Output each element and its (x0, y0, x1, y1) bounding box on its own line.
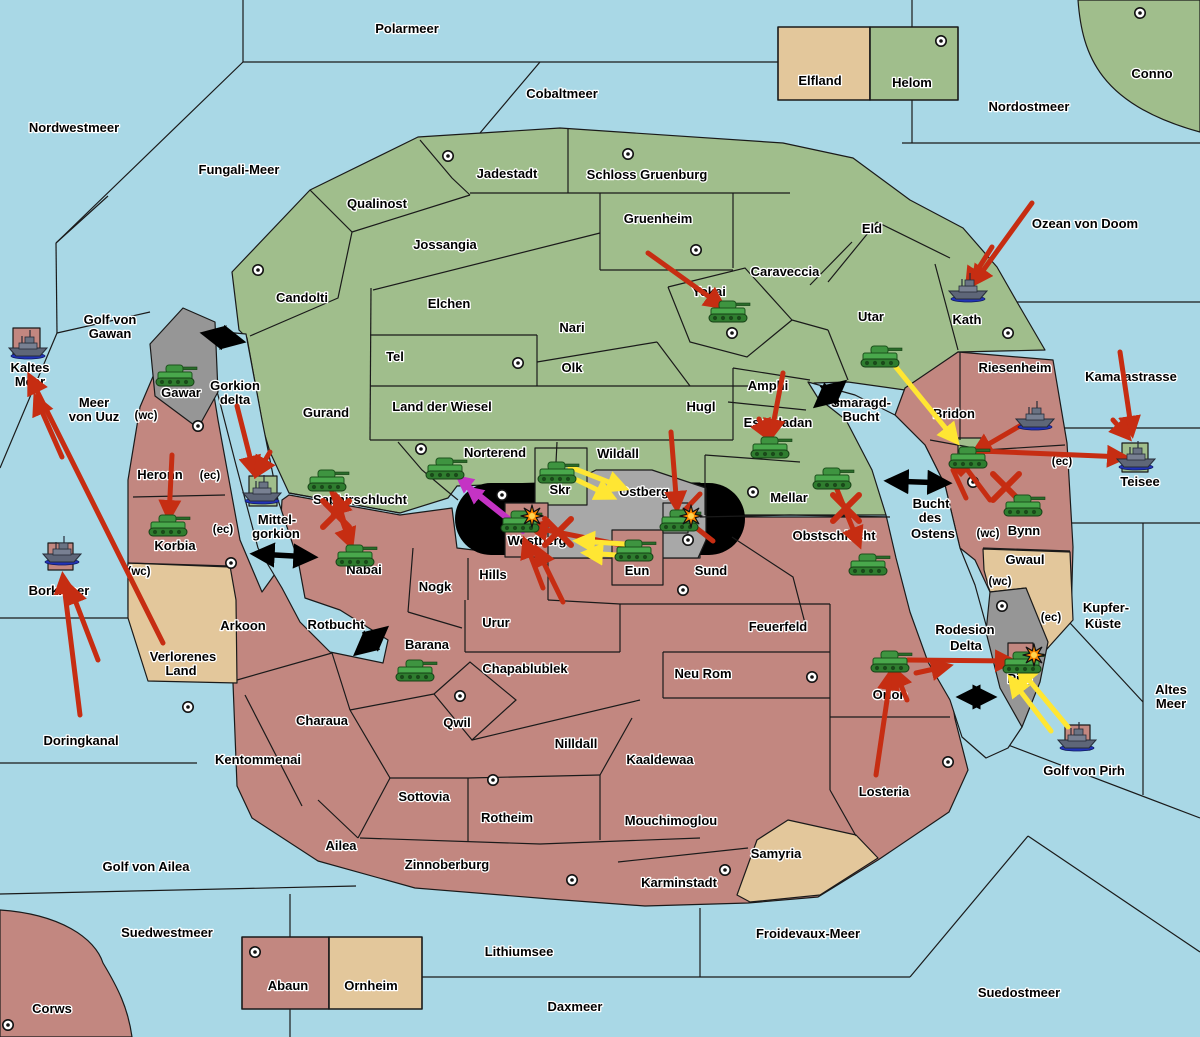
supply-center-dot (193, 421, 203, 431)
label-gwaul: Gwaul (1005, 552, 1044, 567)
label-gurand: Gurand (303, 405, 349, 420)
label-ozean-von-doom: Ozean von Doom (1032, 216, 1138, 231)
label-bucht: Bucht (843, 409, 881, 424)
label-smaragd: Smaragd- (831, 395, 891, 410)
label-kamalastrasse: Kamalastrasse (1085, 369, 1177, 384)
supply-center-dot (253, 265, 263, 275)
label-gorkion: Gorkion (210, 378, 260, 393)
label-wc: (wc) (977, 528, 1000, 540)
label-ostberg: Ostberg (619, 484, 669, 499)
label-ec: (ec) (213, 524, 234, 536)
supply-center-dot (936, 36, 946, 46)
label-norterend: Norterend (464, 445, 526, 460)
label-ostens: Ostens (911, 526, 955, 541)
label-suedostmeer: Suedostmeer (978, 985, 1060, 1000)
red-attack-arrow-icon (908, 660, 1012, 661)
label-abaun: Abaun (268, 978, 309, 993)
supply-center-dot (720, 865, 730, 875)
label-daxmeer: Daxmeer (548, 999, 603, 1014)
label-rotbucht: Rotbucht (307, 617, 365, 632)
label-candolti: Candolti (276, 290, 328, 305)
label-kath: Kath (953, 312, 982, 327)
label-riesenheim: Riesenheim (979, 360, 1052, 375)
supply-center-dot (943, 757, 953, 767)
supply-center-dot (997, 601, 1007, 611)
label-feuerfeld: Feuerfeld (749, 619, 808, 634)
label-rodesion: Rodesion (935, 622, 994, 637)
label-chapablublek: Chapablublek (482, 661, 568, 676)
label-lithiumsee: Lithiumsee (485, 944, 554, 959)
label-skr: Skr (550, 482, 571, 497)
label-golf-von-pirh: Golf von Pirh (1043, 763, 1125, 778)
label-des: des (919, 510, 941, 525)
yellow-attack-arrow-icon (578, 541, 625, 544)
label-losteria: Losteria (859, 784, 910, 799)
label-wildall: Wildall (597, 446, 639, 461)
label-delta: Delta (950, 638, 983, 653)
game-map: NordwestmeerPolarmeerFungali-MeerCobaltm… (0, 0, 1200, 1037)
supply-center-dot (497, 490, 507, 500)
label-sottovia: Sottovia (398, 789, 450, 804)
label-heronn: Heronn (137, 467, 183, 482)
supply-center-dot (183, 702, 193, 712)
supply-center-dot (488, 775, 498, 785)
label-gorkion: gorkion (252, 526, 300, 541)
label-nordwestmeer: Nordwestmeer (29, 120, 119, 135)
supply-center-dot (513, 358, 523, 368)
adjacency-double-arrow-icon (890, 481, 946, 483)
label-ec: (ec) (1052, 456, 1073, 468)
explosion-icon (680, 505, 702, 527)
label-ec: (ec) (1041, 612, 1062, 624)
red-attack-arrow-icon (169, 455, 172, 517)
supply-center-dot (1135, 8, 1145, 18)
label-polarmeer: Polarmeer (375, 21, 439, 36)
label-kaaldewaa: Kaaldewaa (626, 752, 694, 767)
supply-center-dot (416, 444, 426, 454)
label-samyria: Samyria (751, 846, 802, 861)
label-urur: Urur (482, 615, 509, 630)
label-schloss-gruenburg: Schloss Gruenburg (587, 167, 708, 182)
explosion-icon (521, 505, 543, 527)
label-bucht: Bucht (913, 496, 951, 511)
label-ailea: Ailea (325, 838, 357, 853)
label-barana: Barana (405, 637, 450, 652)
adjacency-double-arrow-icon (256, 554, 312, 557)
label-neu-rom: Neu Rom (674, 666, 731, 681)
region-legend-ornheim[interactable] (329, 937, 422, 1009)
supply-center-dot (443, 151, 453, 161)
label-esmaladan: Esmaladan (744, 415, 813, 430)
label-gawan: Gawan (89, 326, 132, 341)
label-kentommenai: Kentommenai (215, 752, 301, 767)
supply-center-dot (683, 535, 693, 545)
label-korbia: Korbia (154, 538, 196, 553)
label-olk: Olk (562, 360, 584, 375)
label-golf-von-ailea: Golf von Ailea (103, 859, 191, 874)
label-fungali-meer: Fungali-Meer (199, 162, 280, 177)
label-sund: Sund (695, 563, 728, 578)
label-kaltes: Kaltes (10, 360, 49, 375)
label-cobaltmeer: Cobaltmeer (526, 86, 598, 101)
label-teisee: Teisee (1120, 474, 1160, 489)
label-wc: (wc) (135, 410, 158, 422)
label-land-der-wiesel: Land der Wiesel (392, 399, 492, 414)
region-legend-elfland[interactable] (778, 27, 870, 100)
label-meer: Meer (79, 395, 109, 410)
label-gruenheim: Gruenheim (624, 211, 693, 226)
label-nari: Nari (559, 320, 584, 335)
supply-center-dot (623, 149, 633, 159)
label-charaua: Charaua (296, 713, 349, 728)
supply-center-dot (1003, 328, 1013, 338)
label-meer: Meer (1156, 696, 1186, 711)
label-eun: Eun (625, 563, 650, 578)
label-ornheim: Ornheim (344, 978, 397, 993)
map-canvas[interactable]: NordwestmeerPolarmeerFungali-MeerCobaltm… (0, 0, 1200, 1037)
supply-center-dot (678, 585, 688, 595)
label-froidevaux-meer: Froidevaux-Meer (756, 926, 860, 941)
label-elfland: Elfland (798, 73, 841, 88)
label-elchen: Elchen (428, 296, 471, 311)
label-zinnoberburg: Zinnoberburg (405, 857, 490, 872)
label-nilldall: Nilldall (555, 736, 598, 751)
label-mouchimoglou: Mouchimoglou (625, 813, 717, 828)
explosion-icon (1023, 644, 1045, 666)
supply-center-dot (567, 875, 577, 885)
label-borkmeer: Borkmeer (29, 583, 90, 598)
label-mellar: Mellar (770, 490, 808, 505)
supply-center-dot (727, 328, 737, 338)
label-arkoon: Arkoon (220, 618, 266, 633)
label-mittel: Mittel- (258, 512, 296, 527)
supply-center-dot (250, 947, 260, 957)
label-altes: Altes (1155, 682, 1187, 697)
label-land: Land (165, 663, 196, 678)
label-karminstadt: Karminstadt (641, 875, 718, 890)
label-obstschlucht: Obstschlucht (792, 528, 876, 543)
supply-center-dot (691, 245, 701, 255)
supply-center-dot (455, 691, 465, 701)
label-ec: (ec) (200, 470, 221, 482)
label-wc: (wc) (989, 576, 1012, 588)
label-corws: Corws (32, 1001, 72, 1016)
label-doringkanal: Doringkanal (43, 733, 118, 748)
label-qualinost: Qualinost (347, 196, 408, 211)
label-nordostmeer: Nordostmeer (989, 99, 1070, 114)
label-hugl: Hugl (687, 399, 716, 414)
label-gawar: Gawar (161, 385, 201, 400)
supply-center-dot (3, 1020, 13, 1030)
label-eld: Eld (862, 221, 882, 236)
label-rotheim: Rotheim (481, 810, 533, 825)
supply-center-dot (226, 558, 236, 568)
label-tel: Tel (386, 349, 404, 364)
label-qwil: Qwil (443, 715, 470, 730)
label-bynn: Bynn (1008, 523, 1041, 538)
label-k-ste: Küste (1085, 616, 1121, 631)
label-kupfer: Kupfer- (1083, 600, 1129, 615)
label-conno: Conno (1131, 66, 1172, 81)
label-jadestadt: Jadestadt (477, 166, 538, 181)
label-utar: Utar (858, 309, 884, 324)
label-caraveccia: Caraveccia (751, 264, 820, 279)
label-golf-von: Golf von (84, 312, 137, 327)
label-von-uuz: von Uuz (69, 409, 120, 424)
supply-center-dot (807, 672, 817, 682)
label-jossangia: Jossangia (413, 237, 477, 252)
label-hills: Hills (479, 567, 506, 582)
label-nogk: Nogk (419, 579, 452, 594)
label-suedwestmeer: Suedwestmeer (121, 925, 213, 940)
label-verlorenes: Verlorenes (150, 649, 217, 664)
label-helom: Helom (892, 75, 932, 90)
supply-center-dot (748, 487, 758, 497)
